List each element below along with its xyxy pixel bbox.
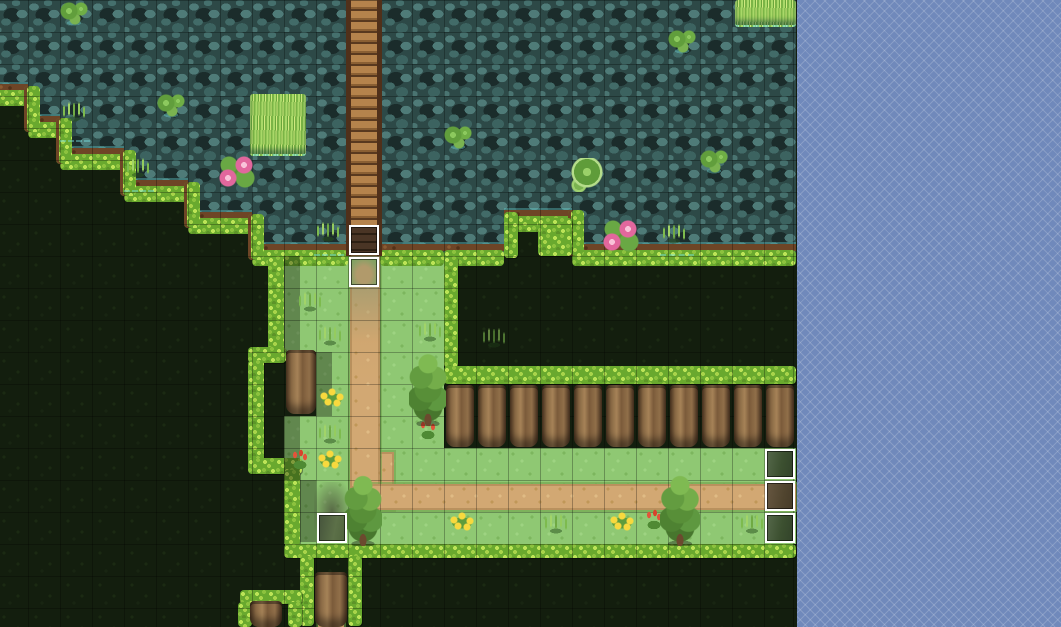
tile-dark-grass[interactable]	[604, 576, 636, 608]
tile-dark-grass[interactable]	[700, 320, 732, 352]
tile-dark-grass[interactable]	[0, 608, 28, 627]
tile-dark-grass[interactable]	[572, 576, 604, 608]
tile-water[interactable]	[380, 96, 412, 128]
tile-water[interactable]	[92, 0, 124, 32]
tile-dark-grass[interactable]	[28, 256, 60, 288]
tile-water[interactable]	[636, 128, 668, 160]
tile-dark-grass[interactable]	[60, 480, 92, 512]
tile-dark-grass[interactable]	[764, 576, 796, 608]
tile-grass[interactable]	[732, 448, 764, 480]
tile-water[interactable]	[732, 192, 764, 224]
tile-dark-grass[interactable]	[252, 480, 284, 512]
tile-water[interactable]	[316, 160, 348, 192]
tile-dark-grass[interactable]	[604, 608, 636, 627]
tile-dark-grass[interactable]	[28, 224, 60, 256]
tile-water[interactable]	[572, 96, 604, 128]
tile-water[interactable]	[508, 0, 540, 32]
tile-water[interactable]	[380, 160, 412, 192]
tile-dark-grass[interactable]	[220, 256, 252, 288]
tile-dark-grass[interactable]	[188, 416, 220, 448]
tile-water[interactable]	[188, 96, 220, 128]
tile-dark-grass[interactable]	[188, 544, 220, 576]
tile-grass[interactable]	[412, 448, 444, 480]
tile-water[interactable]	[188, 128, 220, 160]
tile-water[interactable]	[412, 128, 444, 160]
tile-dark-grass[interactable]	[156, 352, 188, 384]
tile-dark-grass[interactable]	[668, 576, 700, 608]
tile-water[interactable]	[444, 96, 476, 128]
tile-water[interactable]	[668, 192, 700, 224]
tile-water[interactable]	[28, 0, 60, 32]
tile-grass[interactable]	[572, 512, 604, 544]
tile-dark-grass[interactable]	[60, 544, 92, 576]
tile-water[interactable]	[668, 160, 700, 192]
tile-grass[interactable]	[380, 320, 412, 352]
tile-dark-grass[interactable]	[124, 352, 156, 384]
tile-water[interactable]	[476, 32, 508, 64]
tile-dark-grass[interactable]	[156, 288, 188, 320]
tile-water[interactable]	[700, 96, 732, 128]
tile-dark-grass[interactable]	[28, 160, 60, 192]
tile-dark-grass[interactable]	[252, 544, 284, 576]
tile-water[interactable]	[92, 32, 124, 64]
tile-grass[interactable]	[476, 448, 508, 480]
tile-dark-grass[interactable]	[60, 288, 92, 320]
tile-grass[interactable]	[380, 512, 412, 544]
tile-dark-grass[interactable]	[444, 608, 476, 627]
tile-water[interactable]	[572, 64, 604, 96]
tile-dark-grass[interactable]	[668, 320, 700, 352]
tile-dark-grass[interactable]	[28, 192, 60, 224]
tile-water[interactable]	[0, 0, 28, 32]
tile-water[interactable]	[476, 64, 508, 96]
tile-dark-grass[interactable]	[92, 480, 124, 512]
tile-dark-grass[interactable]	[156, 544, 188, 576]
tile-dark-grass[interactable]	[60, 576, 92, 608]
tile-dark-grass[interactable]	[188, 384, 220, 416]
tile-water[interactable]	[508, 160, 540, 192]
tile-water[interactable]	[636, 192, 668, 224]
tile-water[interactable]	[220, 32, 252, 64]
tile-water[interactable]	[700, 192, 732, 224]
tile-dark-grass[interactable]	[668, 288, 700, 320]
tile-dark-grass[interactable]	[156, 224, 188, 256]
tile-grass[interactable]	[540, 448, 572, 480]
tile-dark-grass[interactable]	[92, 512, 124, 544]
tile-dark-grass[interactable]	[188, 480, 220, 512]
tile-dark-grass[interactable]	[604, 320, 636, 352]
dirt-path-horizontal[interactable]	[362, 484, 796, 510]
tile-dark-grass[interactable]	[60, 256, 92, 288]
tile-dark-grass[interactable]	[188, 256, 220, 288]
tile-water[interactable]	[316, 64, 348, 96]
tile-water[interactable]	[220, 0, 252, 32]
tile-water[interactable]	[540, 160, 572, 192]
tile-dark-grass[interactable]	[92, 256, 124, 288]
tile-dark-grass[interactable]	[156, 608, 188, 627]
tile-water[interactable]	[732, 64, 764, 96]
tile-dark-grass[interactable]	[732, 288, 764, 320]
tile-dark-grass[interactable]	[700, 288, 732, 320]
tile-water[interactable]	[412, 160, 444, 192]
tile-dark-grass[interactable]	[28, 544, 60, 576]
tile-dark-grass[interactable]	[0, 384, 28, 416]
tile-water[interactable]	[764, 128, 796, 160]
tile-dark-grass[interactable]	[476, 608, 508, 627]
tile-dark-grass[interactable]	[28, 352, 60, 384]
tile-dark-grass[interactable]	[380, 608, 412, 627]
tile-dark-grass[interactable]	[0, 448, 28, 480]
tile-dark-grass[interactable]	[0, 224, 28, 256]
tile-water[interactable]	[572, 128, 604, 160]
tile-water[interactable]	[284, 64, 316, 96]
tile-dark-grass[interactable]	[28, 608, 60, 627]
tile-water[interactable]	[476, 96, 508, 128]
tile-dark-grass[interactable]	[60, 448, 92, 480]
tile-water[interactable]	[316, 96, 348, 128]
tile-water[interactable]	[188, 0, 220, 32]
tile-water[interactable]	[476, 128, 508, 160]
tile-dark-grass[interactable]	[60, 608, 92, 627]
tile-dark-grass[interactable]	[92, 416, 124, 448]
tile-grass[interactable]	[700, 448, 732, 480]
event-marker[interactable]	[349, 225, 379, 255]
tile-water[interactable]	[540, 64, 572, 96]
tile-dark-grass[interactable]	[220, 480, 252, 512]
tile-water[interactable]	[700, 0, 732, 32]
tile-dark-grass[interactable]	[700, 608, 732, 627]
tile-water[interactable]	[0, 32, 28, 64]
tile-dark-grass[interactable]	[636, 608, 668, 627]
tile-grass[interactable]	[476, 512, 508, 544]
tile-dark-grass[interactable]	[220, 288, 252, 320]
tile-water[interactable]	[604, 96, 636, 128]
tile-water[interactable]	[668, 128, 700, 160]
tile-dark-grass[interactable]	[540, 256, 572, 288]
tile-dark-grass[interactable]	[188, 576, 220, 608]
tile-water[interactable]	[220, 64, 252, 96]
tile-water[interactable]	[156, 64, 188, 96]
tile-grass[interactable]	[444, 448, 476, 480]
tile-water[interactable]	[316, 0, 348, 32]
tile-water[interactable]	[604, 32, 636, 64]
tile-water[interactable]	[124, 32, 156, 64]
tile-dark-grass[interactable]	[476, 288, 508, 320]
tile-water[interactable]	[284, 160, 316, 192]
tile-dark-grass[interactable]	[60, 384, 92, 416]
tile-dark-grass[interactable]	[156, 384, 188, 416]
tile-dark-grass[interactable]	[0, 512, 28, 544]
tile-dark-grass[interactable]	[636, 576, 668, 608]
tile-dark-grass[interactable]	[124, 320, 156, 352]
tile-dark-grass[interactable]	[0, 544, 28, 576]
event-marker[interactable]	[765, 481, 795, 511]
tile-dark-grass[interactable]	[92, 608, 124, 627]
tile-dark-grass[interactable]	[444, 576, 476, 608]
tile-water[interactable]	[412, 96, 444, 128]
tile-dark-grass[interactable]	[28, 512, 60, 544]
tile-water[interactable]	[380, 32, 412, 64]
tile-water[interactable]	[252, 32, 284, 64]
dirt-path-vertical[interactable]	[350, 252, 380, 488]
tile-grass[interactable]	[380, 384, 412, 416]
tile-water[interactable]	[156, 0, 188, 32]
tile-dark-grass[interactable]	[508, 608, 540, 627]
tile-grass[interactable]	[380, 352, 412, 384]
tile-water[interactable]	[60, 64, 92, 96]
tile-grass[interactable]	[412, 512, 444, 544]
tile-water[interactable]	[92, 96, 124, 128]
tile-dark-grass[interactable]	[92, 320, 124, 352]
tile-water[interactable]	[732, 160, 764, 192]
tile-water[interactable]	[284, 0, 316, 32]
map-canvas[interactable]	[0, 0, 797, 627]
tile-dark-grass[interactable]	[156, 512, 188, 544]
tile-dark-grass[interactable]	[60, 224, 92, 256]
tile-dark-grass[interactable]	[764, 320, 796, 352]
tile-dark-grass[interactable]	[732, 576, 764, 608]
tile-water[interactable]	[124, 64, 156, 96]
tile-water[interactable]	[636, 64, 668, 96]
tile-dark-grass[interactable]	[0, 576, 28, 608]
tile-water[interactable]	[444, 64, 476, 96]
tile-dark-grass[interactable]	[0, 416, 28, 448]
tile-dark-grass[interactable]	[92, 224, 124, 256]
tile-dark-grass[interactable]	[732, 608, 764, 627]
tile-water[interactable]	[380, 64, 412, 96]
tile-dark-grass[interactable]	[28, 448, 60, 480]
tile-dark-grass[interactable]	[156, 480, 188, 512]
tile-dark-grass[interactable]	[668, 608, 700, 627]
tile-water[interactable]	[668, 64, 700, 96]
tile-grass[interactable]	[380, 416, 412, 448]
tile-water[interactable]	[540, 0, 572, 32]
tile-water[interactable]	[28, 32, 60, 64]
tile-water[interactable]	[732, 96, 764, 128]
event-marker[interactable]	[765, 513, 795, 543]
tile-water[interactable]	[700, 64, 732, 96]
tile-dark-grass[interactable]	[124, 480, 156, 512]
tile-dark-grass[interactable]	[124, 288, 156, 320]
tile-water[interactable]	[508, 32, 540, 64]
tile-water[interactable]	[764, 96, 796, 128]
tile-dark-grass[interactable]	[508, 256, 540, 288]
tile-dark-grass[interactable]	[188, 288, 220, 320]
tile-water[interactable]	[380, 192, 412, 224]
tile-dark-grass[interactable]	[28, 416, 60, 448]
tile-dark-grass[interactable]	[92, 192, 124, 224]
tile-dark-grass[interactable]	[636, 288, 668, 320]
tile-dark-grass[interactable]	[60, 416, 92, 448]
tile-dark-grass[interactable]	[28, 320, 60, 352]
tile-dark-grass[interactable]	[156, 448, 188, 480]
tile-dark-grass[interactable]	[92, 384, 124, 416]
tile-water[interactable]	[604, 0, 636, 32]
tile-dark-grass[interactable]	[92, 448, 124, 480]
tile-dark-grass[interactable]	[60, 352, 92, 384]
tile-water[interactable]	[668, 0, 700, 32]
tile-dark-grass[interactable]	[764, 608, 796, 627]
tile-water[interactable]	[540, 32, 572, 64]
tile-water[interactable]	[444, 160, 476, 192]
tile-water[interactable]	[220, 96, 252, 128]
tile-water[interactable]	[156, 32, 188, 64]
tile-dark-grass[interactable]	[124, 384, 156, 416]
tile-water[interactable]	[284, 32, 316, 64]
tile-water[interactable]	[636, 0, 668, 32]
tile-dark-grass[interactable]	[156, 576, 188, 608]
tile-water[interactable]	[252, 64, 284, 96]
tile-dark-grass[interactable]	[124, 512, 156, 544]
tile-dark-grass[interactable]	[124, 448, 156, 480]
tile-dark-grass[interactable]	[156, 320, 188, 352]
event-marker[interactable]	[349, 257, 379, 287]
tile-grass[interactable]	[572, 448, 604, 480]
tile-grass[interactable]	[604, 448, 636, 480]
tile-water[interactable]	[700, 32, 732, 64]
tile-water[interactable]	[732, 32, 764, 64]
tile-water[interactable]	[60, 32, 92, 64]
tile-dark-grass[interactable]	[124, 416, 156, 448]
tile-water[interactable]	[380, 0, 412, 32]
tile-dark-grass[interactable]	[700, 576, 732, 608]
tile-dark-grass[interactable]	[124, 576, 156, 608]
tile-dark-grass[interactable]	[540, 576, 572, 608]
tile-dark-grass[interactable]	[412, 608, 444, 627]
tile-dark-grass[interactable]	[92, 544, 124, 576]
tile-dark-grass[interactable]	[0, 288, 28, 320]
tile-dark-grass[interactable]	[156, 256, 188, 288]
tile-dark-grass[interactable]	[508, 288, 540, 320]
tile-dark-grass[interactable]	[220, 320, 252, 352]
tile-water[interactable]	[732, 128, 764, 160]
tile-water[interactable]	[764, 160, 796, 192]
tile-water[interactable]	[764, 64, 796, 96]
event-marker[interactable]	[317, 513, 347, 543]
tile-dark-grass[interactable]	[540, 320, 572, 352]
tile-water[interactable]	[508, 128, 540, 160]
tile-dark-grass[interactable]	[540, 608, 572, 627]
tile-water[interactable]	[412, 0, 444, 32]
tile-water[interactable]	[636, 32, 668, 64]
tile-dark-grass[interactable]	[572, 288, 604, 320]
tile-water[interactable]	[540, 128, 572, 160]
tile-dark-grass[interactable]	[732, 320, 764, 352]
tile-water[interactable]	[508, 96, 540, 128]
tile-dark-grass[interactable]	[124, 224, 156, 256]
tile-water[interactable]	[508, 64, 540, 96]
tile-dark-grass[interactable]	[188, 320, 220, 352]
tile-dark-grass[interactable]	[60, 320, 92, 352]
tile-water[interactable]	[316, 32, 348, 64]
tile-dark-grass[interactable]	[508, 320, 540, 352]
tile-water[interactable]	[604, 128, 636, 160]
tile-dark-grass[interactable]	[28, 480, 60, 512]
tile-dark-grass[interactable]	[252, 512, 284, 544]
tile-dark-grass[interactable]	[764, 288, 796, 320]
tile-water[interactable]	[444, 0, 476, 32]
tile-dark-grass[interactable]	[0, 160, 28, 192]
tile-water[interactable]	[252, 0, 284, 32]
tile-water[interactable]	[92, 64, 124, 96]
tile-water[interactable]	[412, 192, 444, 224]
tile-dark-grass[interactable]	[0, 352, 28, 384]
tile-water[interactable]	[124, 0, 156, 32]
tile-dark-grass[interactable]	[28, 384, 60, 416]
tile-grass[interactable]	[412, 288, 444, 320]
tile-water[interactable]	[540, 96, 572, 128]
tile-dark-grass[interactable]	[0, 256, 28, 288]
tile-water[interactable]	[636, 96, 668, 128]
tile-dark-grass[interactable]	[188, 608, 220, 627]
tile-water[interactable]	[188, 32, 220, 64]
tile-dark-grass[interactable]	[60, 512, 92, 544]
tile-dark-grass[interactable]	[188, 512, 220, 544]
tile-dark-grass[interactable]	[604, 288, 636, 320]
tile-dark-grass[interactable]	[92, 576, 124, 608]
tile-water[interactable]	[156, 128, 188, 160]
tile-dark-grass[interactable]	[476, 576, 508, 608]
tile-water[interactable]	[572, 32, 604, 64]
tile-water[interactable]	[604, 160, 636, 192]
tile-water[interactable]	[252, 160, 284, 192]
tile-water[interactable]	[188, 64, 220, 96]
tile-water[interactable]	[572, 0, 604, 32]
tile-water[interactable]	[764, 32, 796, 64]
tile-water[interactable]	[412, 32, 444, 64]
tile-dark-grass[interactable]	[92, 352, 124, 384]
tile-water[interactable]	[764, 192, 796, 224]
tile-water[interactable]	[604, 64, 636, 96]
tile-dark-grass[interactable]	[572, 608, 604, 627]
tile-dark-grass[interactable]	[188, 352, 220, 384]
tile-grass[interactable]	[508, 512, 540, 544]
tile-dark-grass[interactable]	[124, 608, 156, 627]
tile-dark-grass[interactable]	[412, 576, 444, 608]
tile-dark-grass[interactable]	[220, 512, 252, 544]
tile-grass[interactable]	[508, 448, 540, 480]
tile-dark-grass[interactable]	[540, 288, 572, 320]
tile-grass[interactable]	[380, 288, 412, 320]
tile-water[interactable]	[444, 192, 476, 224]
tile-dark-grass[interactable]	[636, 320, 668, 352]
tile-grass[interactable]	[700, 512, 732, 544]
tile-dark-grass[interactable]	[124, 544, 156, 576]
tile-dark-grass[interactable]	[572, 320, 604, 352]
tile-water[interactable]	[444, 32, 476, 64]
tile-dark-grass[interactable]	[188, 448, 220, 480]
tile-water[interactable]	[668, 96, 700, 128]
wooden-bridge[interactable]	[346, 0, 382, 256]
tile-water[interactable]	[380, 128, 412, 160]
tile-dark-grass[interactable]	[220, 544, 252, 576]
tile-dark-grass[interactable]	[0, 480, 28, 512]
tile-dark-grass[interactable]	[0, 320, 28, 352]
tile-dark-grass[interactable]	[0, 192, 28, 224]
tile-dark-grass[interactable]	[124, 256, 156, 288]
tile-dark-grass[interactable]	[28, 288, 60, 320]
tile-dark-grass[interactable]	[380, 576, 412, 608]
tile-water[interactable]	[284, 192, 316, 224]
tile-dark-grass[interactable]	[60, 192, 92, 224]
tile-water[interactable]	[316, 128, 348, 160]
tile-dark-grass[interactable]	[508, 576, 540, 608]
event-marker[interactable]	[765, 449, 795, 479]
tile-dark-grass[interactable]	[156, 416, 188, 448]
tile-dark-grass[interactable]	[0, 128, 28, 160]
tile-water[interactable]	[412, 64, 444, 96]
tile-dark-grass[interactable]	[28, 576, 60, 608]
